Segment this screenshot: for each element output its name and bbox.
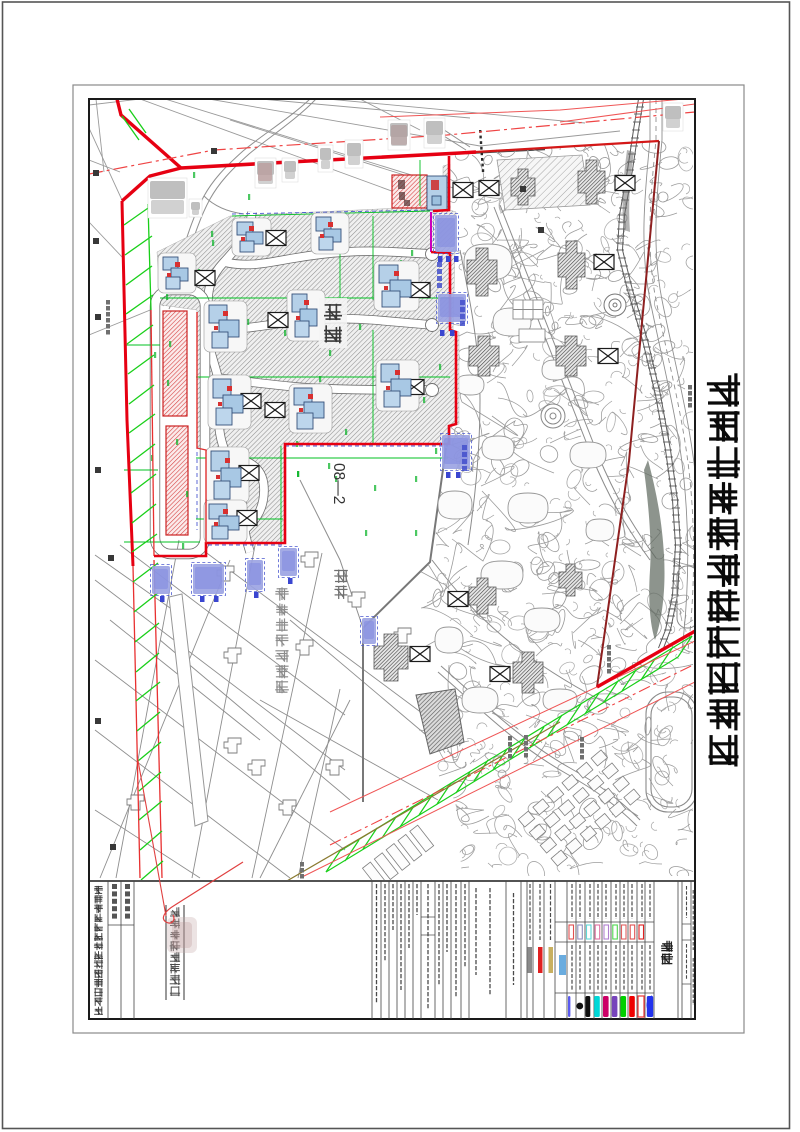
svg-text:08—2: 08—2 xyxy=(330,463,347,504)
